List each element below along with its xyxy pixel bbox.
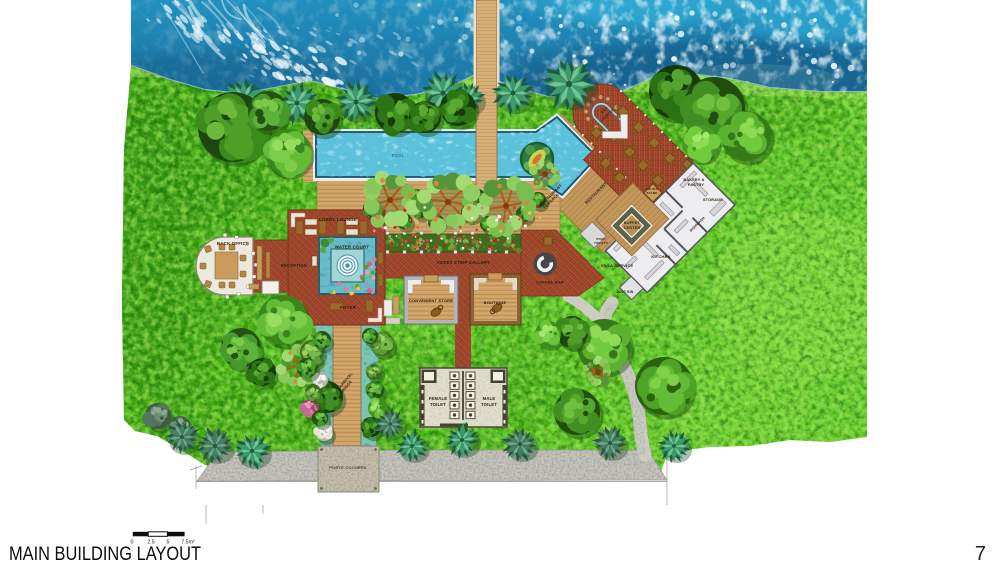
svg-text:DUST BIN: DUST BIN: [617, 290, 634, 294]
svg-text:7: 7: [975, 543, 986, 563]
svg-text:TOILET: TOILET: [430, 402, 446, 407]
svg-text:VILLA SERVICE: VILLA SERVICE: [601, 263, 634, 268]
svg-text:WATER COURT: WATER COURT: [335, 245, 370, 250]
svg-text:POOL: POOL: [392, 153, 405, 158]
svg-text:PORTE COCHERE: PORTE COCHERE: [329, 465, 367, 470]
svg-text:MALE: MALE: [483, 396, 496, 401]
svg-text:BOUTIQUE: BOUTIQUE: [484, 300, 507, 305]
svg-text:COFFEE BAR: COFFEE BAR: [536, 280, 564, 285]
svg-text:TOILET: TOILET: [481, 402, 497, 407]
svg-text:TOILETS: TOILETS: [594, 241, 608, 245]
svg-text:STORAGE: STORAGE: [703, 198, 723, 202]
svg-text:KITCHEN: KITCHEN: [651, 254, 670, 259]
svg-text:LOBBY LOUNGE: LOBBY LOUNGE: [319, 217, 357, 222]
svg-text:MAIN BUILDING LAYOUT: MAIN BUILDING LAYOUT: [9, 543, 201, 563]
svg-text:FOYER: FOYER: [340, 305, 357, 310]
svg-text:PASTRY: PASTRY: [688, 183, 704, 187]
svg-text:ADIZES STRIP GALLERY: ADIZES STRIP GALLERY: [436, 260, 490, 265]
svg-text:BUFFET: BUFFET: [624, 221, 641, 225]
svg-text:BAKERY &: BAKERY &: [683, 178, 704, 182]
svg-text:STAND: STAND: [646, 191, 658, 195]
svg-text:BACK OFFICE: BACK OFFICE: [217, 241, 249, 246]
svg-text:CENTER: CENTER: [624, 226, 641, 230]
svg-text:RECEPTION: RECEPTION: [281, 263, 307, 268]
svg-text:FEMALE: FEMALE: [429, 396, 447, 401]
svg-text:CONVENIENT STORE: CONVENIENT STORE: [409, 298, 453, 303]
